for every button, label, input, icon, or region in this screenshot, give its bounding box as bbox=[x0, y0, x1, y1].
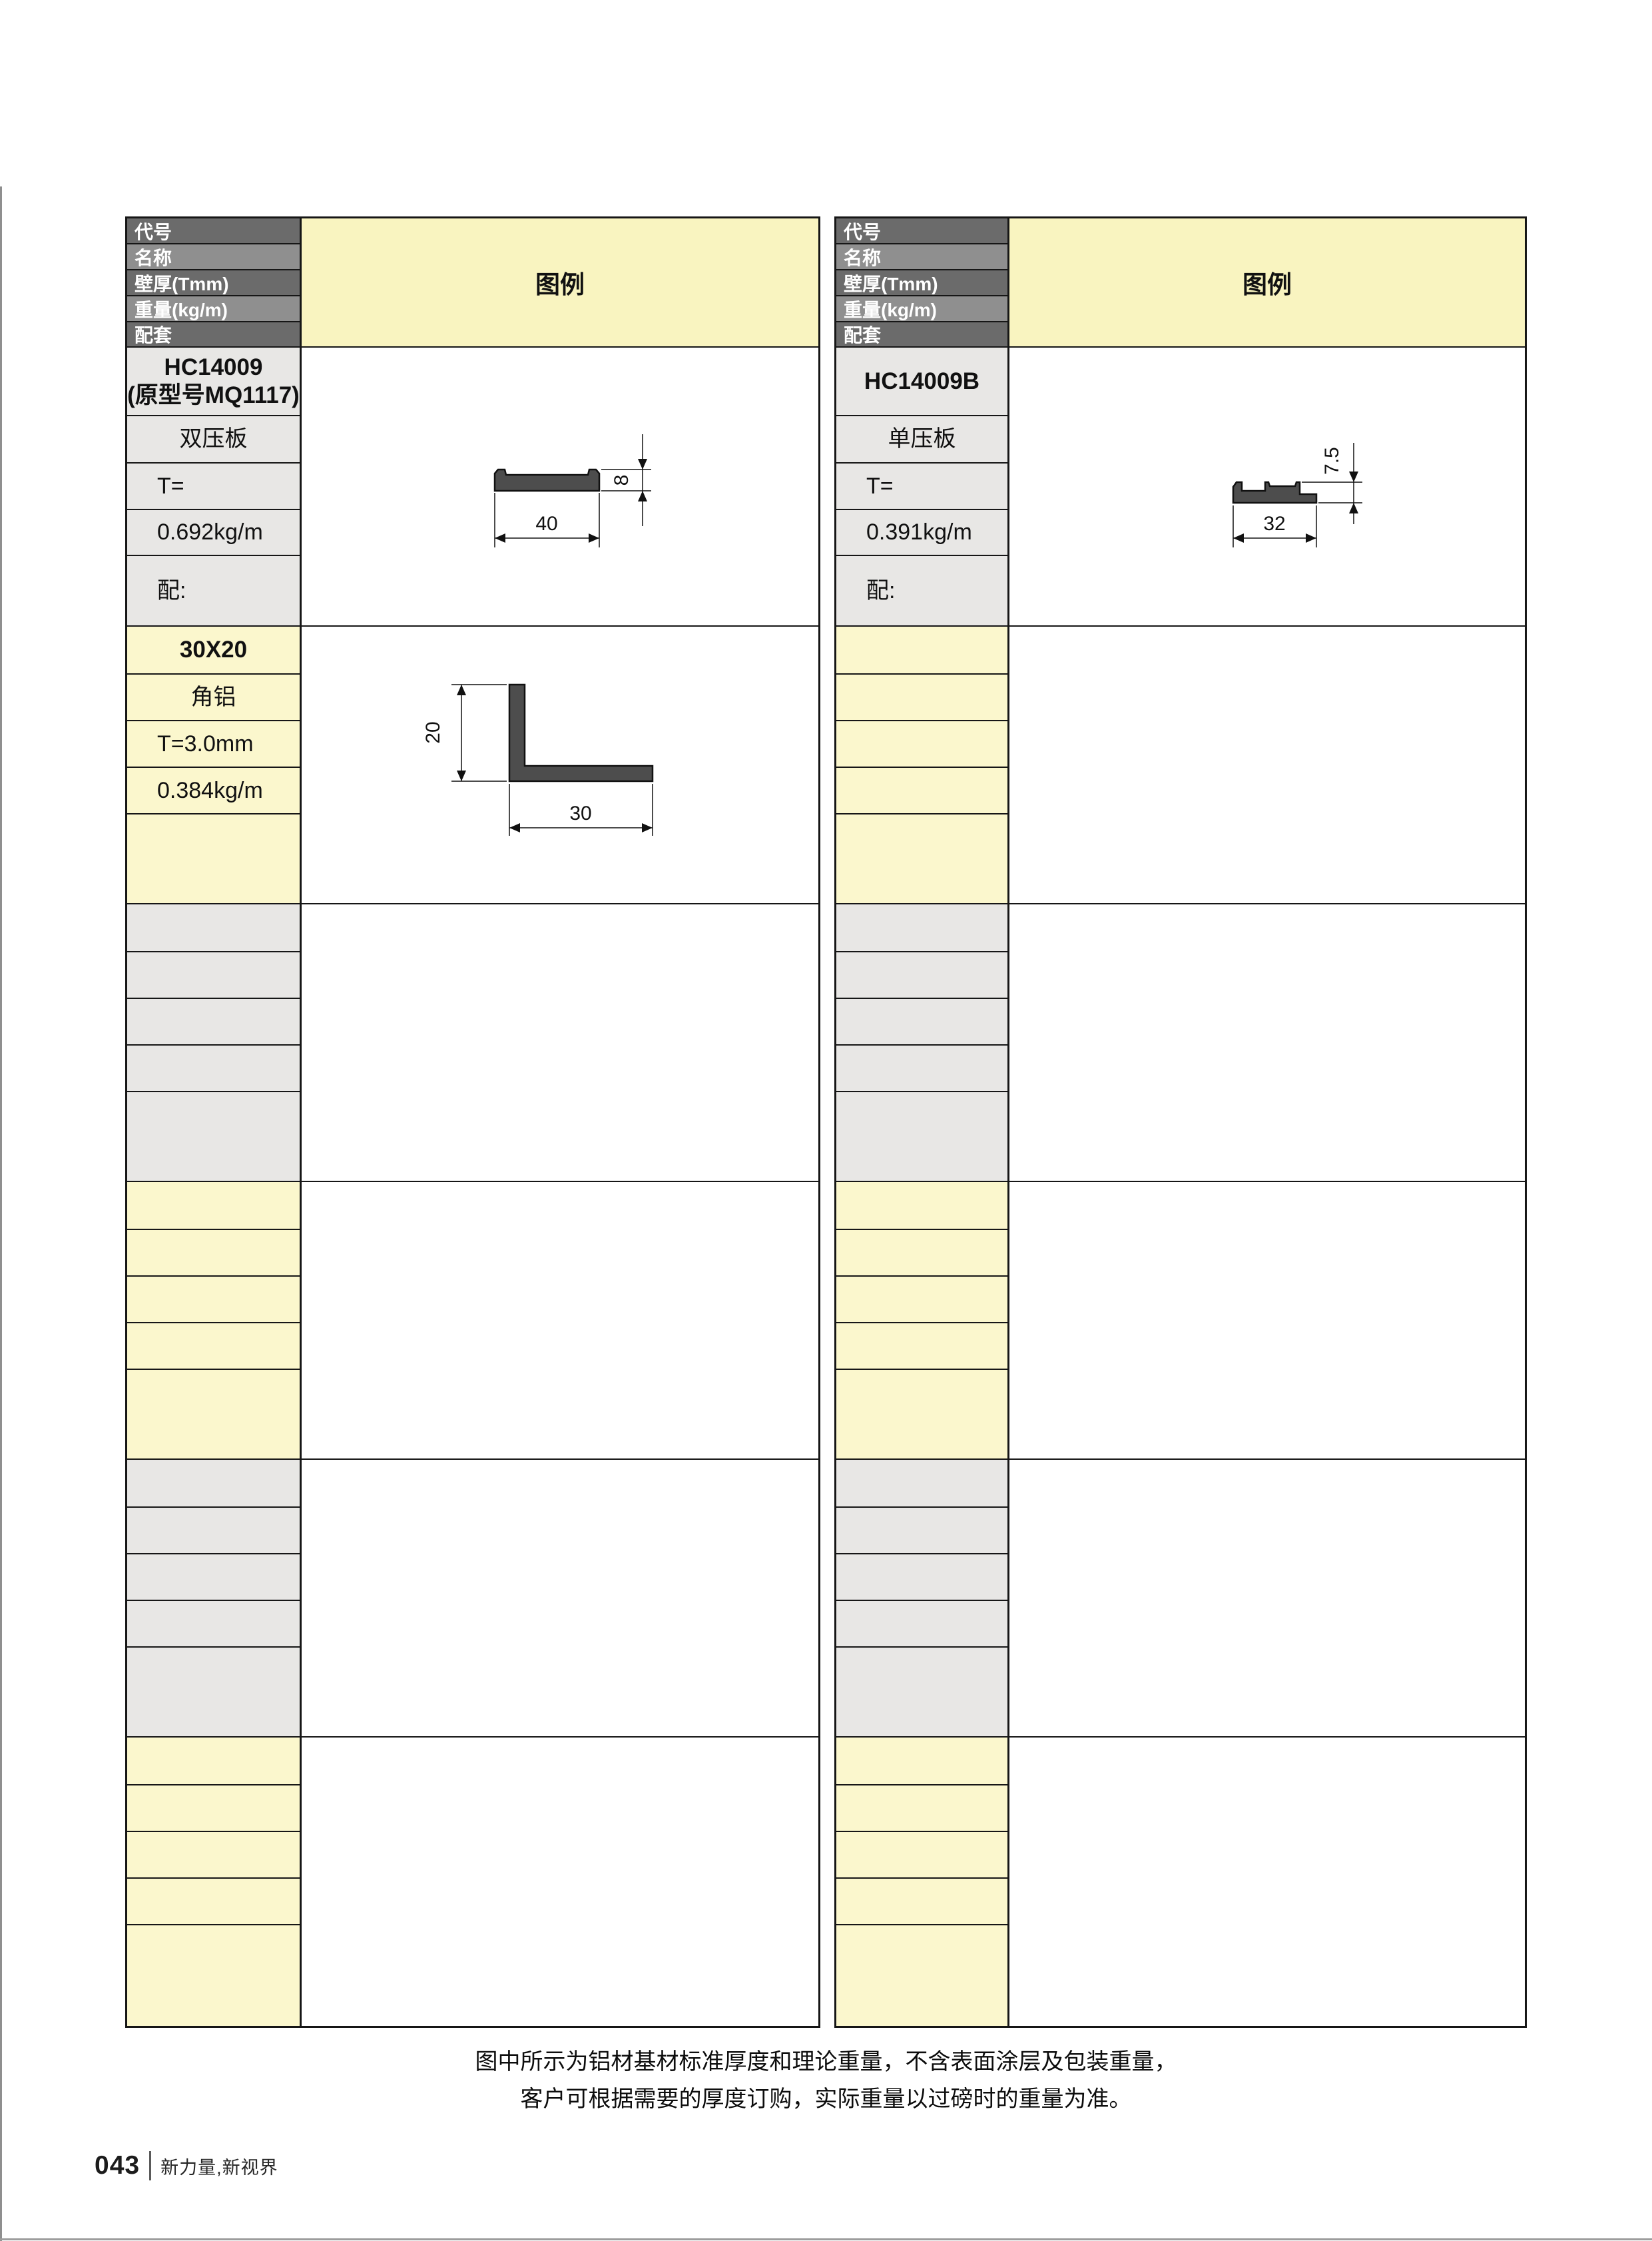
cell-name-text: 角铝 bbox=[191, 684, 236, 711]
cell-code-text: HC14009(原型号MQ1117) bbox=[127, 354, 300, 410]
cell-weight bbox=[836, 768, 1007, 814]
cell-weight: 0.384kg/m bbox=[127, 768, 300, 814]
cell-thickness-text: T= bbox=[157, 473, 184, 500]
cell-thickness-text: T=3.0mm bbox=[157, 731, 254, 758]
footer-divider bbox=[149, 2151, 151, 2180]
cell-name: 双压板 bbox=[127, 416, 300, 464]
legend-header-cell: 图例 bbox=[302, 218, 818, 348]
catalog-page: 代号名称壁厚(Tmm)重量(kg/m)配套HC14009(原型号MQ1117)双… bbox=[0, 0, 1652, 2241]
profile-shape bbox=[509, 685, 653, 781]
arrowhead bbox=[638, 491, 647, 501]
drawing-pressure-plate-single: 7.5 32 bbox=[1199, 426, 1398, 553]
cell-match bbox=[836, 1648, 1007, 1738]
cell-thickness: T=3.0mm bbox=[127, 721, 300, 768]
figure-cell bbox=[1009, 904, 1525, 1182]
arrowhead bbox=[495, 533, 505, 543]
cell-name bbox=[127, 952, 300, 999]
figure-cell bbox=[1009, 1738, 1525, 2026]
drawing-pressure-plate-double: 40 8 bbox=[426, 420, 666, 566]
header-cell-thickness: 壁厚(Tmm) bbox=[836, 270, 1007, 296]
height-dim-label: 7.5 bbox=[1321, 447, 1343, 475]
cell-code: HC14009B bbox=[836, 348, 1007, 416]
cell-weight bbox=[127, 1879, 300, 1925]
cell-name bbox=[836, 1508, 1007, 1554]
cell-match bbox=[127, 1092, 300, 1182]
cell-match-text: 配: bbox=[866, 577, 895, 605]
cell-thickness bbox=[836, 1554, 1007, 1601]
cell-thickness bbox=[127, 999, 300, 1046]
cell-code: 30X20 bbox=[127, 627, 300, 675]
footnote-line2: 客户可根据需要的厚度订购，实际重量以过磅时的重量为准。 bbox=[0, 2081, 1652, 2118]
header-cell-thickness: 壁厚(Tmm) bbox=[127, 270, 300, 296]
cell-thickness: T= bbox=[127, 464, 300, 510]
cell-name-text: 双压板 bbox=[180, 426, 248, 453]
profile-shape bbox=[1233, 482, 1316, 503]
cell-match-text: 配: bbox=[157, 577, 186, 605]
cell-weight bbox=[836, 1601, 1007, 1648]
page-number: 043 bbox=[95, 2151, 140, 2180]
header-cell-match: 配套 bbox=[127, 322, 300, 348]
cell-thickness bbox=[836, 1832, 1007, 1879]
cell-name bbox=[836, 952, 1007, 999]
cell-name bbox=[836, 1785, 1007, 1832]
arrowhead bbox=[1233, 533, 1244, 543]
cell-match: 配: bbox=[836, 556, 1007, 627]
cell-match bbox=[127, 1925, 300, 2026]
arrowhead bbox=[1349, 503, 1358, 513]
drawing-angle-30x20: 20 30 bbox=[413, 666, 692, 852]
page-footer: 043 新力量,新视界 bbox=[95, 2150, 278, 2182]
cell-match bbox=[127, 814, 300, 904]
cell-weight bbox=[836, 1879, 1007, 1925]
cell-code bbox=[836, 1460, 1007, 1508]
cell-thickness bbox=[127, 1277, 300, 1323]
cell-thickness-text: T= bbox=[866, 473, 894, 500]
cell-match bbox=[836, 1370, 1007, 1460]
cell-weight-text: 0.391kg/m bbox=[866, 519, 972, 546]
width-dim-label: 32 bbox=[1263, 513, 1285, 535]
cell-match bbox=[836, 1092, 1007, 1182]
cell-name bbox=[836, 675, 1007, 721]
header-cell-weight: 重量(kg/m) bbox=[836, 296, 1007, 322]
header-cell-name: 名称 bbox=[127, 244, 300, 270]
cell-code bbox=[836, 1738, 1007, 1785]
footnote: 图中所示为铝材基材标准厚度和理论重量，不含表面涂层及包装重量， 客户可根据需要的… bbox=[0, 2043, 1652, 2118]
height-dim-label: 20 bbox=[422, 721, 444, 743]
label-column: 代号名称壁厚(Tmm)重量(kg/m)配套HC14009B单压板T=0.391k… bbox=[836, 218, 1009, 2026]
arrowhead bbox=[638, 459, 647, 470]
cell-weight-text: 0.692kg/m bbox=[157, 519, 263, 546]
cell-weight: 0.692kg/m bbox=[127, 510, 300, 556]
cell-weight bbox=[127, 1046, 300, 1092]
arrowhead bbox=[589, 533, 599, 543]
header-cell-code: 代号 bbox=[836, 218, 1007, 244]
cell-code bbox=[127, 1182, 300, 1230]
arrowhead bbox=[642, 823, 653, 832]
figure-cell bbox=[1009, 1460, 1525, 1738]
cell-thickness bbox=[127, 1554, 300, 1601]
cell-weight: 0.391kg/m bbox=[836, 510, 1007, 556]
label-column: 代号名称壁厚(Tmm)重量(kg/m)配套HC14009(原型号MQ1117)双… bbox=[127, 218, 302, 2026]
cell-code: HC14009(原型号MQ1117) bbox=[127, 348, 300, 416]
profile-shape bbox=[495, 470, 599, 491]
arrowhead bbox=[457, 771, 466, 781]
cell-thickness bbox=[836, 721, 1007, 768]
cell-code bbox=[836, 1182, 1007, 1230]
cell-weight bbox=[836, 1323, 1007, 1370]
header-cell-name: 名称 bbox=[836, 244, 1007, 270]
arrowhead bbox=[457, 685, 466, 695]
cell-name-text: 单压板 bbox=[888, 426, 956, 453]
cell-name bbox=[127, 1785, 300, 1832]
header-cell-code: 代号 bbox=[127, 218, 300, 244]
cell-code-text: 30X20 bbox=[180, 636, 247, 664]
legend-header-cell: 图例 bbox=[1009, 218, 1525, 348]
figure-cell bbox=[302, 1738, 818, 2026]
cell-thickness bbox=[836, 1277, 1007, 1323]
header-cell-weight: 重量(kg/m) bbox=[127, 296, 300, 322]
cell-code bbox=[836, 904, 1007, 952]
figure-cell bbox=[1009, 1182, 1525, 1460]
height-dim-label: 8 bbox=[611, 475, 633, 486]
footnote-line1: 图中所示为铝材基材标准厚度和理论重量，不含表面涂层及包装重量， bbox=[0, 2043, 1652, 2081]
footer-slogan: 新力量,新视界 bbox=[160, 2153, 278, 2179]
cell-thickness bbox=[836, 999, 1007, 1046]
cell-code bbox=[836, 627, 1007, 675]
arrowhead bbox=[1349, 472, 1358, 482]
cell-name: 单压板 bbox=[836, 416, 1007, 464]
cell-code bbox=[127, 1460, 300, 1508]
page-bottom-edge-mark bbox=[0, 2238, 1652, 2240]
cell-thickness: T= bbox=[836, 464, 1007, 510]
header-cell-match: 配套 bbox=[836, 322, 1007, 348]
width-dim-label: 40 bbox=[535, 513, 557, 535]
figure-cell bbox=[302, 1460, 818, 1738]
cell-name: 角铝 bbox=[127, 675, 300, 721]
spec-table-right: 代号名称壁厚(Tmm)重量(kg/m)配套HC14009B单压板T=0.391k… bbox=[834, 216, 1527, 2028]
figure-cell bbox=[302, 904, 818, 1182]
cell-weight bbox=[127, 1323, 300, 1370]
cell-weight bbox=[836, 1046, 1007, 1092]
cell-code-text: HC14009B bbox=[864, 368, 979, 396]
cell-weight-text: 0.384kg/m bbox=[157, 777, 263, 804]
arrowhead bbox=[1306, 533, 1316, 543]
cell-name bbox=[836, 1230, 1007, 1277]
cell-name bbox=[127, 1508, 300, 1554]
cell-match bbox=[836, 814, 1007, 904]
figure-cell bbox=[302, 1182, 818, 1460]
cell-name bbox=[127, 1230, 300, 1277]
cell-thickness bbox=[127, 1832, 300, 1879]
page-left-edge-mark bbox=[0, 186, 2, 2241]
cell-match bbox=[127, 1648, 300, 1738]
figure-cell bbox=[1009, 627, 1525, 904]
cell-match bbox=[127, 1370, 300, 1460]
cell-match: 配: bbox=[127, 556, 300, 627]
cell-code bbox=[127, 904, 300, 952]
cell-code bbox=[127, 1738, 300, 1785]
cell-weight bbox=[127, 1601, 300, 1648]
cell-match bbox=[836, 1925, 1007, 2026]
width-dim-label: 30 bbox=[569, 802, 591, 824]
arrowhead bbox=[509, 823, 520, 832]
